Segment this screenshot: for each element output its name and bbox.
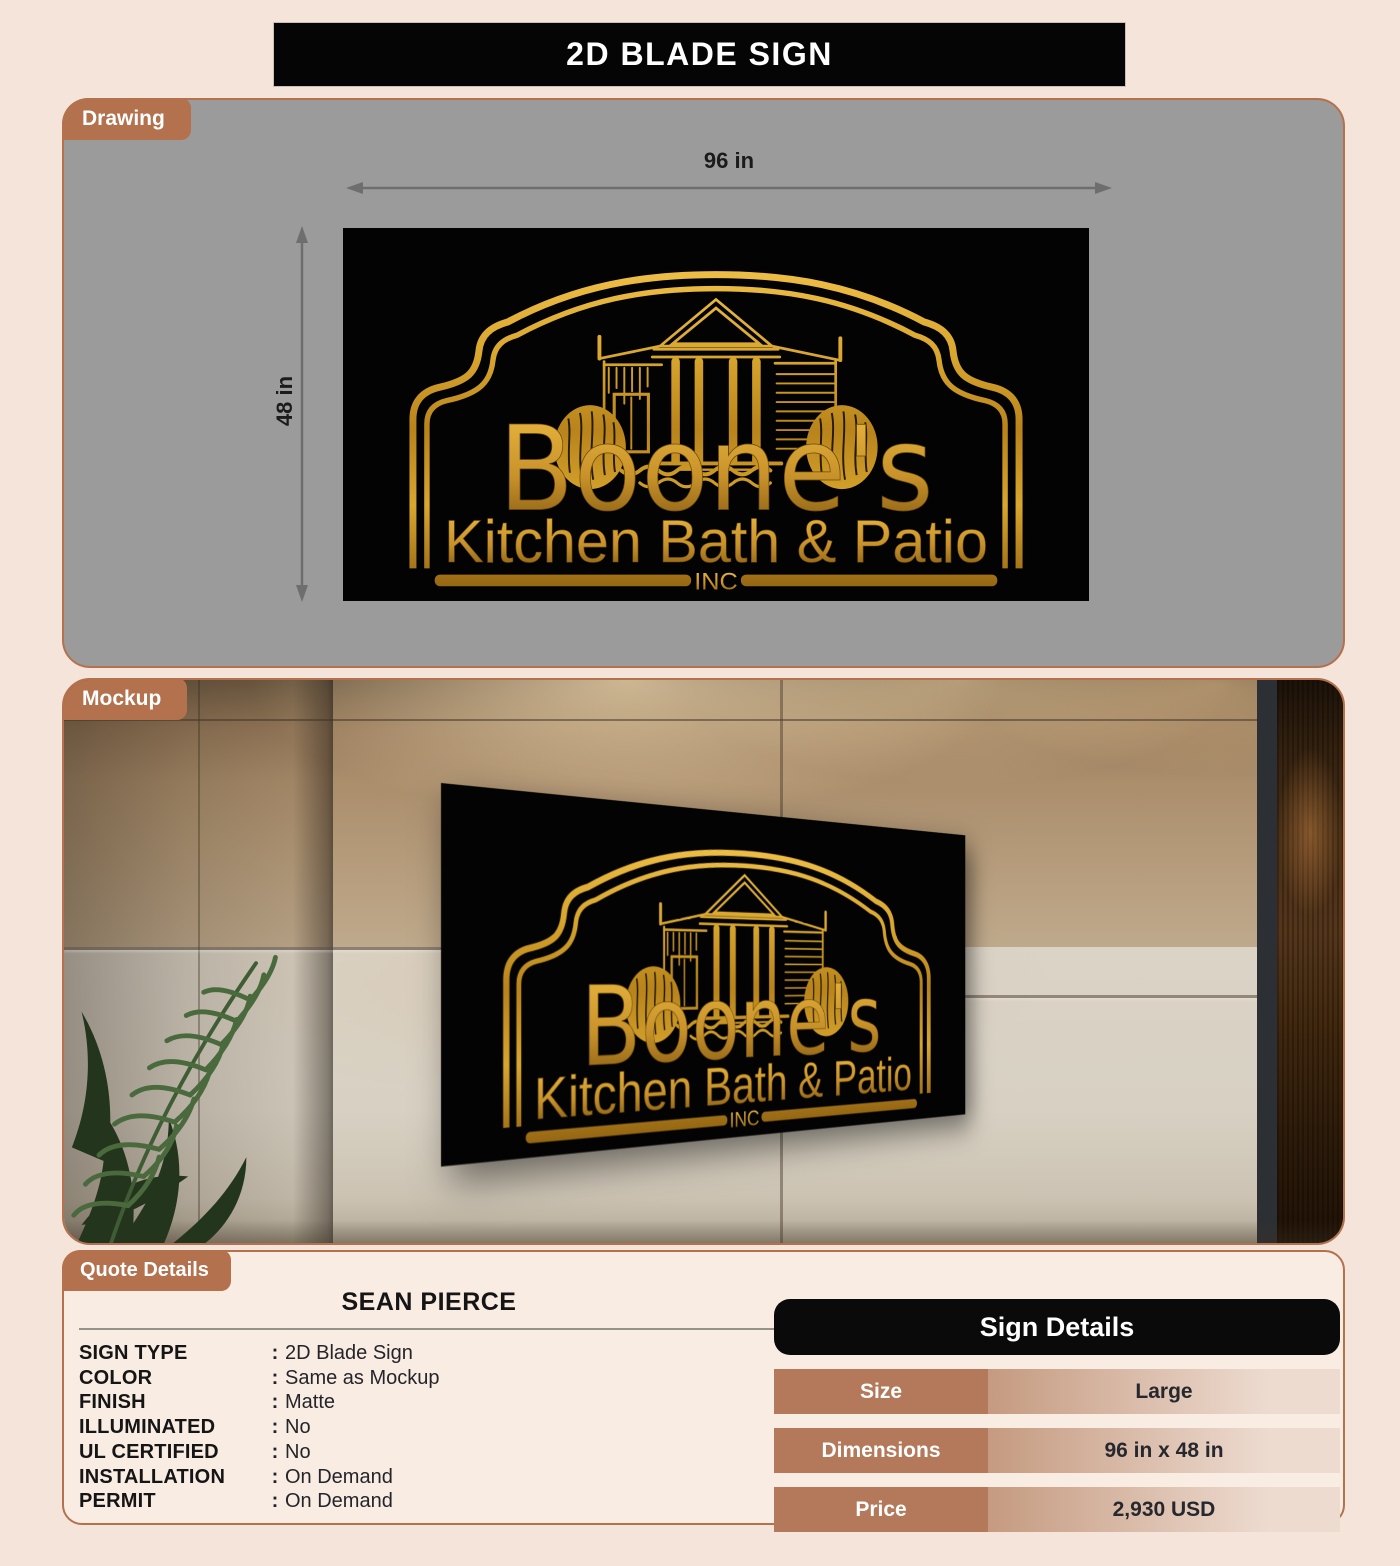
page-title-bar: 2D BLADE SIGN (273, 22, 1126, 87)
quote-field-value: No (285, 1441, 779, 1464)
quote-field-colon: : (267, 1342, 283, 1365)
sign-details-table: Sign Details Size Large Dimensions 96 in… (774, 1299, 1340, 1532)
mockup-seam (64, 719, 1261, 721)
sign-mockup (441, 783, 965, 1167)
page-title: 2D BLADE SIGN (566, 36, 833, 73)
quote-field-label: UL CERTIFIED (79, 1441, 265, 1464)
mockup-door-glow (1277, 748, 1344, 917)
quote-field-colon: : (267, 1391, 283, 1414)
quote-fields: SIGN TYPE:2D Blade Sign COLOR:Same as Mo… (79, 1342, 779, 1513)
height-dimension-label: 48 in (272, 376, 298, 426)
mockup-door-frame (1257, 680, 1276, 1243)
tab-drawing: Drawing (62, 98, 191, 140)
quote-field-value: On Demand (285, 1490, 779, 1513)
quote-field-colon: : (267, 1416, 283, 1439)
customer-name: SEAN PIERCE (79, 1288, 779, 1317)
width-dimension-label: 96 in (346, 148, 1112, 174)
row-label: Size (774, 1369, 988, 1414)
quote-field-label: PERMIT (79, 1490, 265, 1513)
row-value: 2,930 USD (988, 1487, 1340, 1532)
width-dimension-arrow (346, 180, 1112, 196)
customer-divider (79, 1328, 779, 1330)
table-row: Dimensions 96 in x 48 in (774, 1428, 1340, 1473)
width-dimension: 96 in (346, 148, 1112, 201)
quote-field-value: 2D Blade Sign (285, 1342, 779, 1365)
row-label: Price (774, 1487, 988, 1532)
quote-field-value: On Demand (285, 1466, 779, 1489)
quote-field-colon: : (267, 1441, 283, 1464)
table-row: Size Large (774, 1369, 1340, 1414)
quote-field-colon: : (267, 1490, 283, 1513)
row-value: Large (988, 1369, 1340, 1414)
quote-field-label: COLOR (79, 1367, 265, 1390)
quote-field-value: No (285, 1416, 779, 1439)
customer-block: SEAN PIERCE SIGN TYPE:2D Blade Sign COLO… (79, 1288, 779, 1513)
quote-field-label: INSTALLATION (79, 1466, 265, 1489)
table-row: Price 2,930 USD (774, 1487, 1340, 1532)
quote-field-label: SIGN TYPE (79, 1342, 265, 1365)
quote-field-label: ILLUMINATED (79, 1416, 265, 1439)
quote-field-colon: : (267, 1466, 283, 1489)
row-label: Dimensions (774, 1428, 988, 1473)
quote-details-section: Quote Details SEAN PIERCE SIGN TYPE:2D B… (62, 1250, 1345, 1525)
row-value: 96 in x 48 in (988, 1428, 1340, 1473)
tab-quote-details: Quote Details (62, 1250, 231, 1291)
tab-mockup: Mockup (62, 678, 187, 720)
sign-drawing (343, 228, 1089, 601)
quote-field-colon: : (267, 1367, 283, 1390)
quote-field-value: Matte (285, 1391, 779, 1414)
quote-field-value: Same as Mockup (285, 1367, 779, 1390)
plant-icon (62, 905, 384, 1245)
quote-field-label: FINISH (79, 1391, 265, 1414)
mockup-section: Mockup (62, 678, 1345, 1245)
sign-details-header: Sign Details (774, 1299, 1340, 1355)
drawing-section: Drawing 96 in 48 in (62, 98, 1345, 668)
quote-sheet-page: 2D BLADE SIGN Drawing 96 in 48 in (0, 0, 1400, 1566)
